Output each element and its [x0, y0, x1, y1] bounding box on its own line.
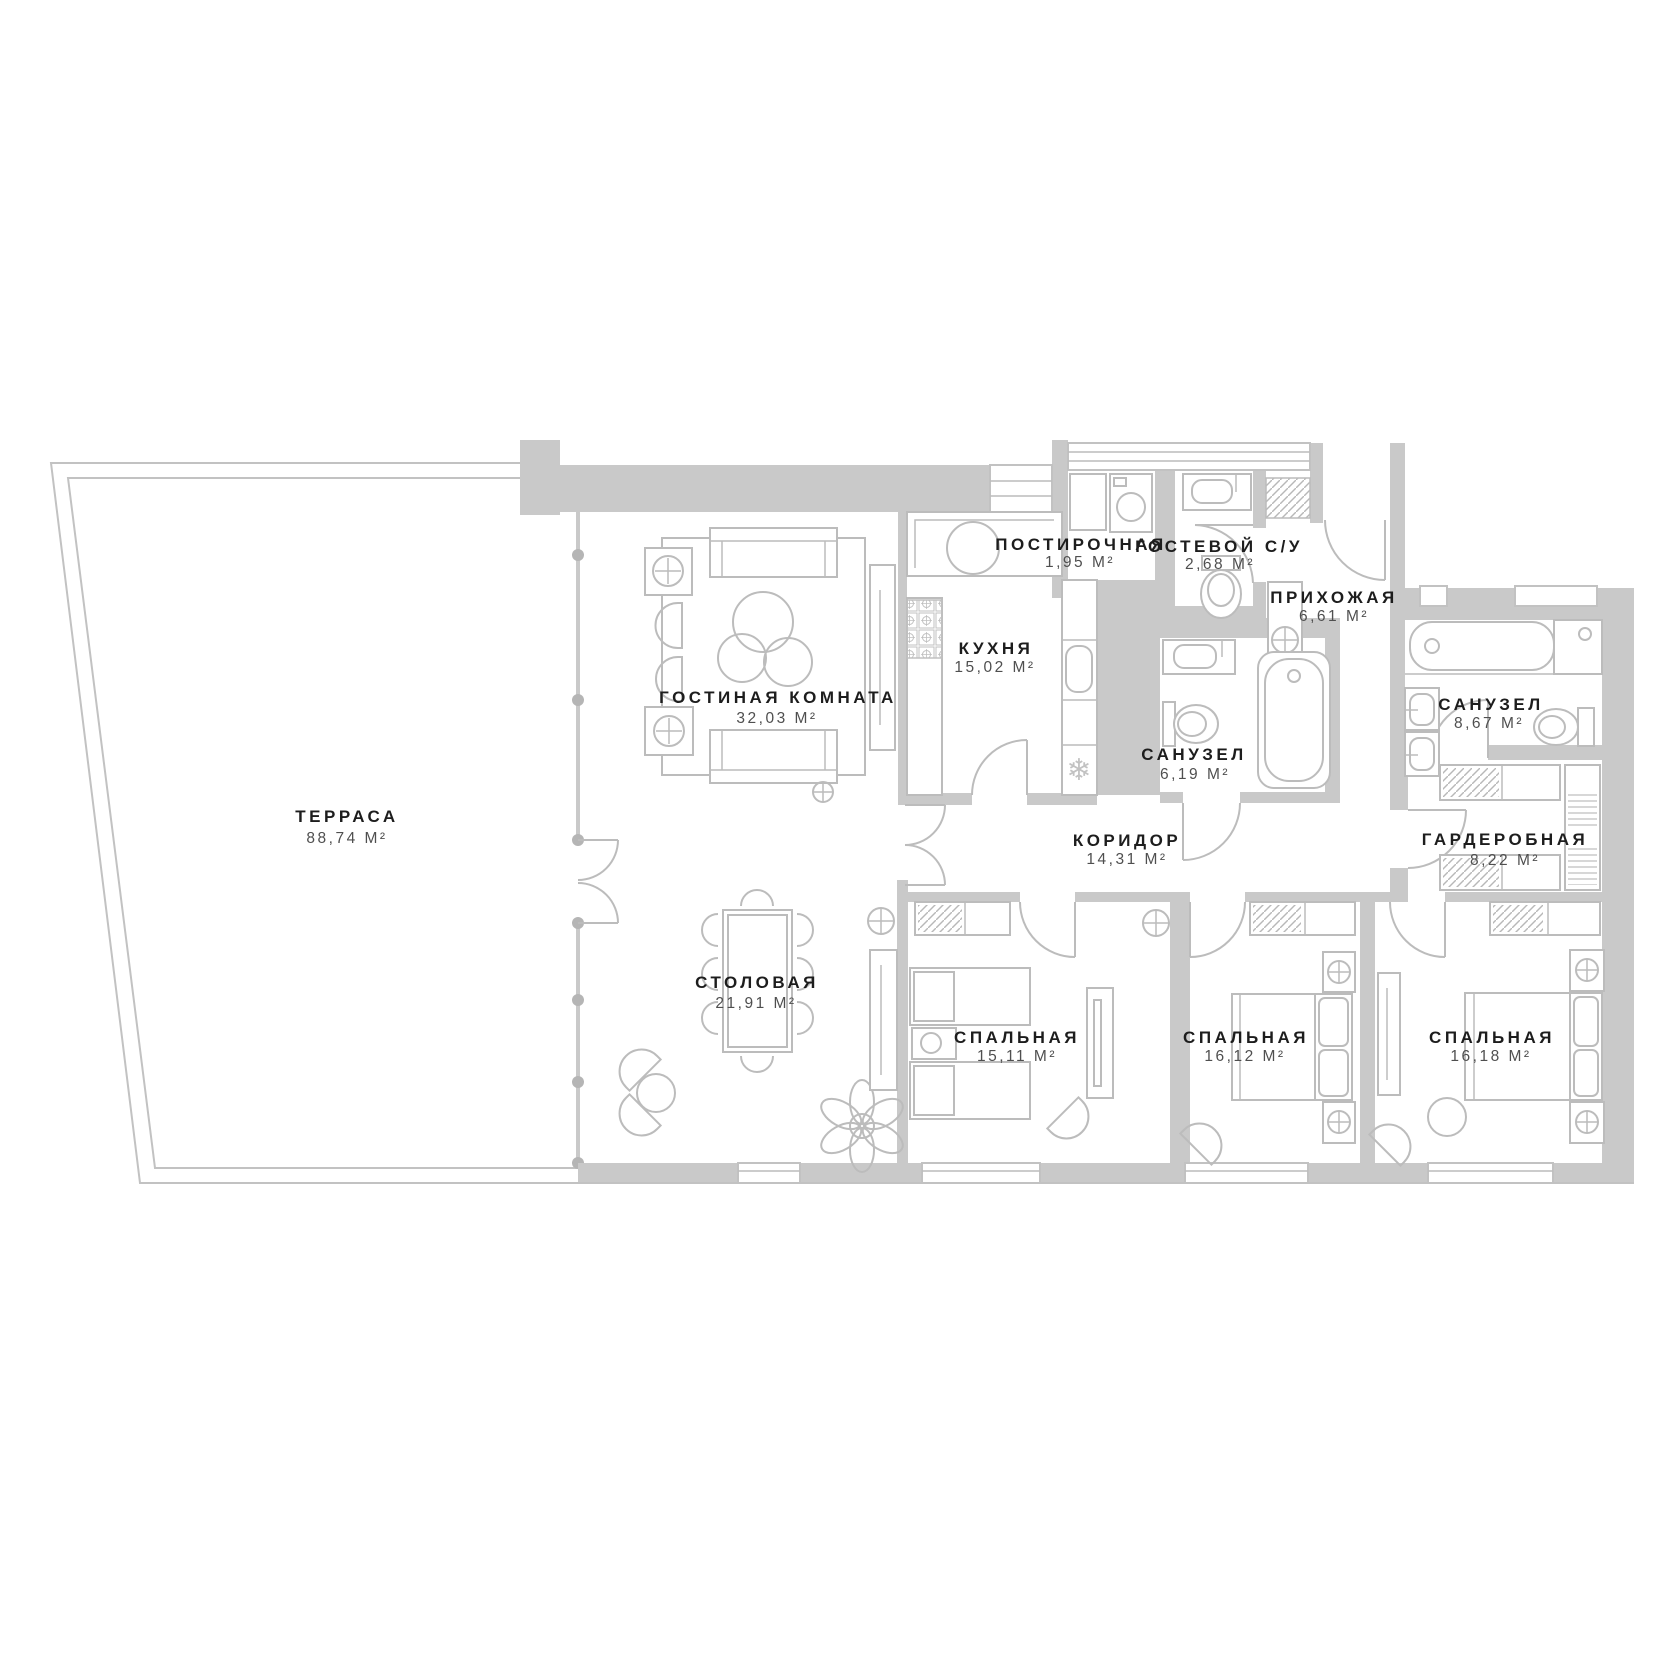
lounge-side-table	[637, 1074, 675, 1112]
wardrobe-column	[1565, 765, 1600, 890]
svg-text:6,19 М²: 6,19 М²	[1160, 766, 1230, 783]
bedroom3-door	[1390, 902, 1445, 957]
kitchen-door	[972, 740, 1027, 795]
svg-text:САНУЗЕЛ: САНУЗЕЛ	[1438, 695, 1543, 714]
heating-valve-icon	[1143, 910, 1169, 936]
svg-text:2,68 М²: 2,68 М²	[1185, 556, 1255, 573]
guest-wc-sink-icon	[1183, 474, 1251, 510]
laundry-counter	[1070, 474, 1106, 530]
label-bedroom1: СПАЛЬНАЯ15,11 М²	[954, 1028, 1080, 1065]
bed-headboard	[1315, 994, 1352, 1100]
bed-double	[1232, 994, 1315, 1100]
bathroom2-counter	[1554, 620, 1602, 674]
label-terrace: ТЕРРАСА88,74 М²	[295, 807, 398, 847]
bathroom1-door	[1183, 803, 1240, 860]
living-room-furniture	[645, 528, 895, 802]
tv-console	[1378, 973, 1400, 1095]
kitchen-left-counter	[907, 598, 942, 795]
bath-top-window-1	[1420, 586, 1447, 606]
dining-furniture	[610, 890, 907, 1172]
terrace-french-door	[578, 840, 618, 923]
svg-text:СПАЛЬНАЯ: СПАЛЬНАЯ	[1183, 1028, 1309, 1047]
bathroom2-bathtub-icon	[1410, 622, 1554, 670]
bedroom1-furniture	[910, 902, 1169, 1148]
side-table-bottom	[645, 707, 693, 755]
lounge-chair-2	[610, 1094, 660, 1144]
kitchen-top-window	[990, 465, 1052, 512]
top-window-band	[1068, 443, 1310, 470]
label-corridor: КОРИДОР14,31 М²	[1073, 831, 1181, 868]
svg-text:САНУЗЕЛ: САНУЗЕЛ	[1141, 745, 1246, 764]
coat-closet	[1266, 478, 1310, 518]
nightstand	[912, 1028, 956, 1059]
nightstand-top	[1570, 950, 1604, 991]
wardrobe-shelf-top	[1440, 765, 1560, 800]
svg-text:14,31 М²: 14,31 М²	[1086, 851, 1167, 868]
bedroom1-closet	[915, 902, 1010, 935]
round-table	[1428, 1098, 1466, 1136]
svg-text:КОРИДОР: КОРИДОР	[1073, 831, 1181, 850]
heating-valve-icon	[868, 908, 894, 934]
armchair-1	[656, 603, 683, 648]
nightstand-bottom	[1323, 1102, 1355, 1143]
sofa-bottom	[710, 730, 837, 783]
svg-text:ГОСТИНАЯ КОМНАТА: ГОСТИНАЯ КОМНАТА	[659, 688, 897, 707]
label-bathroom2: САНУЗЕЛ8,67 М²	[1438, 695, 1543, 732]
svg-text:ГАРДЕРОБНАЯ: ГАРДЕРОБНАЯ	[1422, 830, 1588, 849]
side-table-top	[645, 548, 692, 595]
bathroom2-sinks-icon	[1405, 688, 1439, 776]
floor-plan-drawing: ❄	[0, 0, 1680, 1680]
terrace-glazing	[572, 512, 618, 1169]
bedroom1-door	[1020, 902, 1075, 957]
plant-icon	[816, 1080, 908, 1172]
svg-text:СТОЛОВАЯ: СТОЛОВАЯ	[695, 973, 819, 992]
bedroom2-door	[1190, 902, 1245, 957]
bathroom1-sink-icon	[1163, 640, 1235, 674]
coffee-table	[718, 592, 812, 686]
floor-plan-page: ❄	[0, 0, 1680, 1680]
svg-text:88,74 М²: 88,74 М²	[306, 830, 387, 847]
fridge-icon: ❄	[1066, 754, 1091, 787]
bedroom2-window	[1185, 1163, 1308, 1183]
svg-text:СПАЛЬНАЯ: СПАЛЬНАЯ	[954, 1028, 1080, 1047]
laundry-furniture	[1070, 474, 1152, 532]
bedroom1-window	[922, 1163, 1040, 1183]
svg-text:8,67 М²: 8,67 М²	[1454, 715, 1524, 732]
washing-machine-icon	[1110, 474, 1152, 532]
bed-headboard	[1570, 993, 1602, 1100]
svg-text:16,12 М²: 16,12 М²	[1204, 1048, 1285, 1065]
bedroom3-window	[1428, 1163, 1553, 1183]
armchair	[1369, 1115, 1419, 1165]
svg-text:15,02 М²: 15,02 М²	[954, 659, 1035, 676]
living-double-door	[905, 805, 945, 885]
hob-icon	[907, 600, 942, 658]
dining-console	[870, 950, 897, 1090]
svg-text:8,22 М²: 8,22 М²	[1470, 852, 1540, 869]
bathroom1-toilet-icon	[1163, 702, 1218, 746]
armchair	[1047, 1097, 1097, 1147]
entry-door	[1325, 520, 1385, 580]
tv-console	[870, 565, 895, 750]
svg-text:КУХНЯ: КУХНЯ	[959, 639, 1034, 658]
svg-text:15,11 М²: 15,11 М²	[977, 1048, 1057, 1065]
bed-single-2	[910, 1062, 1030, 1119]
nightstand-bottom	[1570, 1102, 1604, 1143]
label-kitchen: КУХНЯ15,02 М²	[954, 639, 1035, 676]
label-living-room: ГОСТИНАЯ КОМНАТА32,03 М²	[659, 688, 897, 727]
dresser	[1087, 988, 1113, 1098]
svg-text:1,95 М²: 1,95 М²	[1045, 554, 1115, 571]
dining-window	[738, 1163, 800, 1183]
svg-text:СПАЛЬНАЯ: СПАЛЬНАЯ	[1429, 1028, 1555, 1047]
kitchen-right-column: ❄	[1062, 580, 1097, 795]
svg-text:16,18 М²: 16,18 М²	[1450, 1048, 1531, 1065]
bath-top-window-2	[1515, 586, 1597, 606]
svg-text:21,91 М²: 21,91 М²	[715, 995, 796, 1012]
heating-valve-icon	[813, 782, 833, 802]
svg-text:ПРИХОЖАЯ: ПРИХОЖАЯ	[1270, 588, 1398, 607]
nightstand-top	[1323, 952, 1355, 992]
bed-single-1	[910, 968, 1030, 1025]
svg-text:ГОСТЕВОЙ С/У: ГОСТЕВОЙ С/У	[1135, 537, 1303, 556]
sofa-top	[710, 528, 837, 577]
bedroom3-closet	[1490, 902, 1600, 935]
bathroom1-bathtub-icon	[1258, 652, 1330, 788]
bedroom2-closet	[1250, 902, 1355, 935]
svg-text:ТЕРРАСА: ТЕРРАСА	[295, 807, 398, 826]
svg-text:32,03 М²: 32,03 М²	[736, 710, 817, 727]
svg-text:6,61 М²: 6,61 М²	[1299, 608, 1369, 625]
lounge-chair-1	[610, 1040, 660, 1090]
